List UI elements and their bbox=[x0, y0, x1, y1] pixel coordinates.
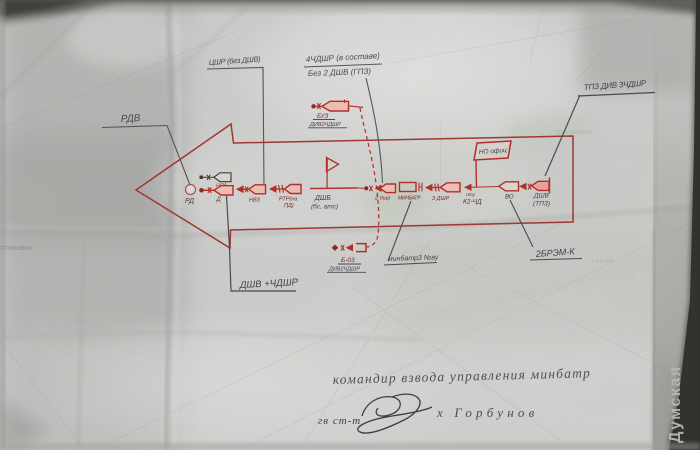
svg-text:(ТПЗ): (ТПЗ) bbox=[533, 201, 550, 208]
svg-text:К2-ЧД: К2-ЧД bbox=[463, 199, 482, 206]
svg-text:ВО: ВО bbox=[505, 195, 514, 201]
svg-text:(бс, атс): (бс, атс) bbox=[311, 203, 338, 211]
svg-text:ДШВ: ДШВ bbox=[533, 193, 550, 200]
svg-text:3 ДШР: 3 ДШР bbox=[432, 196, 450, 202]
svg-text:РД: РД bbox=[185, 198, 194, 205]
svg-text:ДИВ2ЧДШР: ДИВ2ЧДШР bbox=[309, 122, 341, 128]
svg-text:2 БРЭМ: 2 БРЭМ bbox=[590, 259, 613, 265]
svg-text:Д: Д bbox=[216, 197, 222, 203]
svg-text:ДИВ2ЧДШР: ДИВ2ЧДШР bbox=[328, 267, 360, 273]
svg-text:ДШБ: ДШБ bbox=[314, 195, 331, 202]
svg-text:НВЗ: НВЗ bbox=[249, 198, 261, 204]
svg-text:Б-03: Б-03 bbox=[341, 257, 355, 264]
svg-text:РДВ: РДВ bbox=[121, 113, 141, 125]
svg-text:РТР(на: РТР(на bbox=[279, 197, 297, 203]
svg-text:гв ст-т: гв ст-т bbox=[318, 415, 361, 427]
svg-text:установка: установка bbox=[0, 245, 31, 252]
svg-text:Думская: Думская bbox=[667, 365, 684, 443]
svg-text:пту: пту bbox=[466, 193, 476, 198]
svg-text:ПД): ПД) bbox=[284, 203, 294, 209]
svg-text:прикрытие: прикрытие bbox=[554, 129, 592, 136]
svg-text:МИНБАТР: МИНБАТР bbox=[398, 196, 421, 202]
svg-text:2 дшр: 2 дшр bbox=[374, 196, 390, 202]
svg-text:х Горбунов: х Горбунов bbox=[436, 405, 538, 420]
